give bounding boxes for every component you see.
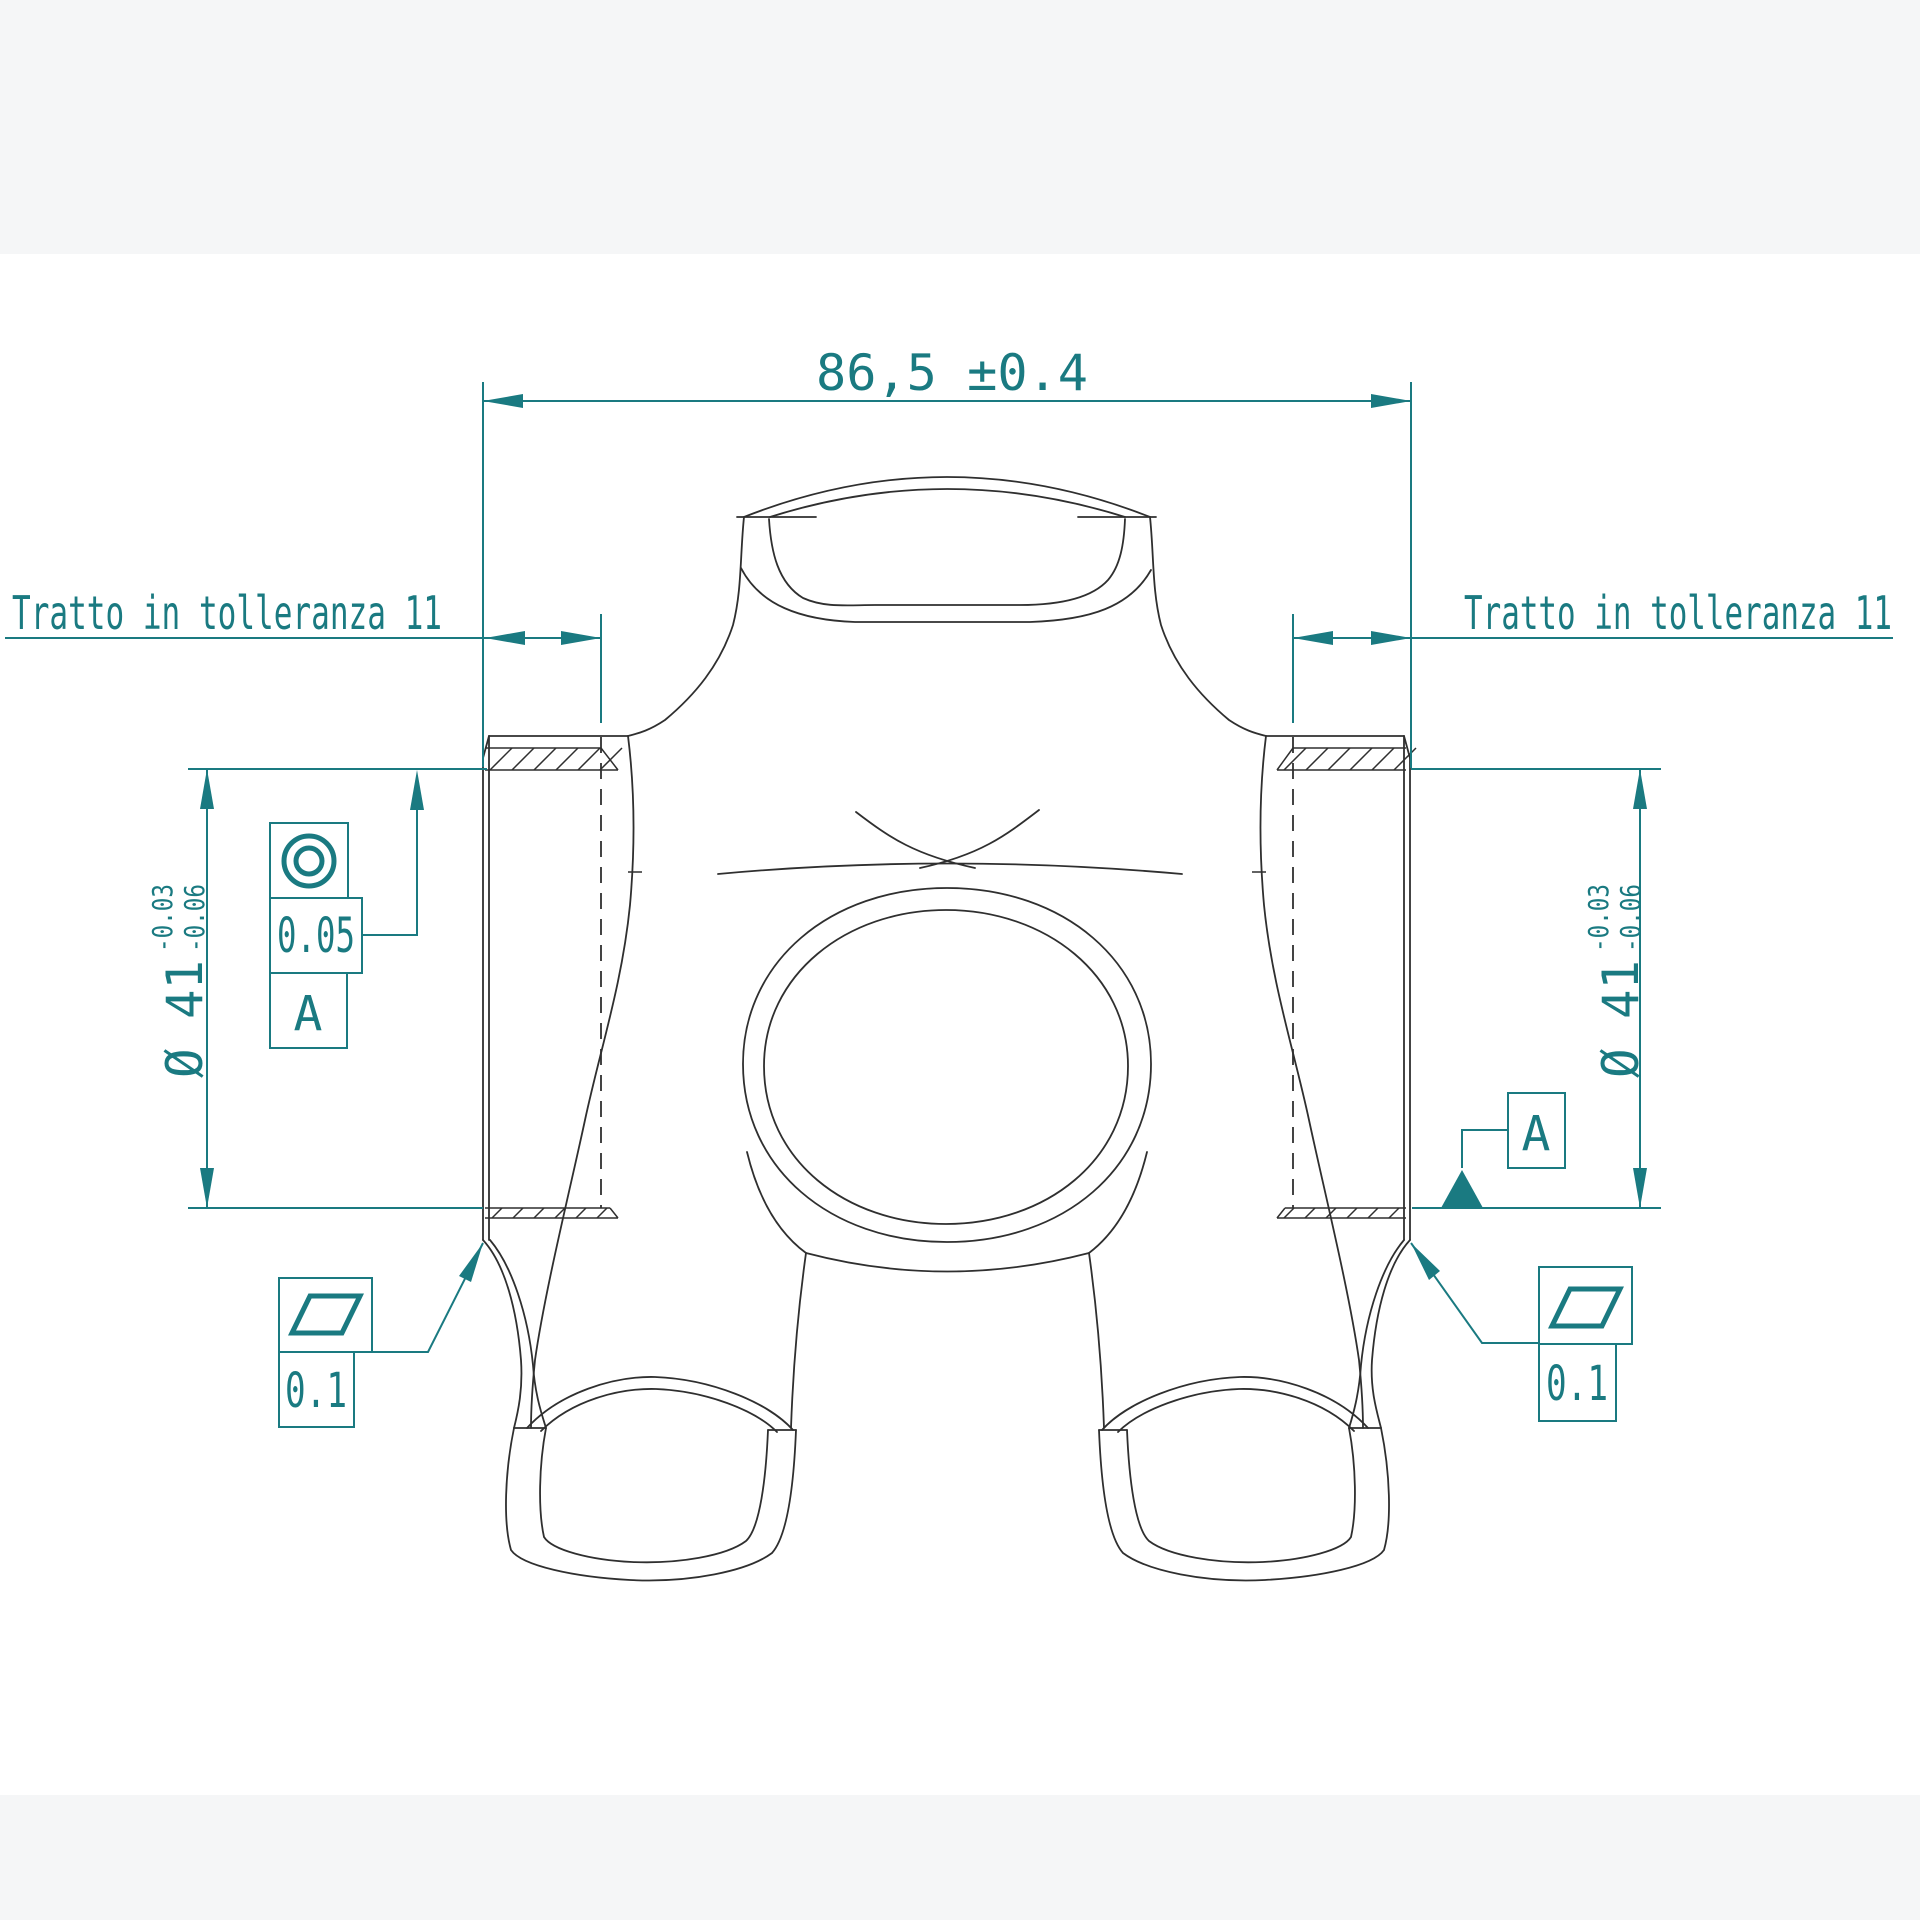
page-top-band (0, 0, 1920, 254)
arrow-up-icon (1633, 769, 1647, 809)
waist-front-edge (718, 864, 1182, 875)
hatch-line (1284, 1208, 1294, 1218)
hatch-line (556, 748, 578, 770)
right-journal-body-fillet (1261, 736, 1364, 1428)
hatch-line (534, 1208, 544, 1218)
ear-slot-lower-band (741, 568, 1151, 622)
bottom-web-sag (806, 1253, 1089, 1272)
right-diameter-tol-lower: -0.06 (1614, 884, 1647, 952)
arrow-down-icon (200, 1168, 214, 1208)
arrow-right-icon (1371, 631, 1411, 645)
top-width-value: 86,5 ±0.4 (816, 344, 1088, 402)
left-foot-cup-outer (506, 1428, 796, 1580)
right-journal-top-band (1277, 748, 1406, 770)
arrow-left-icon (483, 394, 523, 408)
part-outline (483, 477, 1416, 1580)
right-foot-cup-inner (1127, 1428, 1355, 1562)
hatch-line (513, 1208, 523, 1218)
hatch-line (1347, 1208, 1357, 1218)
ear-inner-arch (770, 489, 1125, 517)
flatness-left-tolerance: 0.1 (285, 1363, 347, 1419)
right-diameter-tol-upper: -0.03 (1582, 884, 1615, 952)
center-bore-inner (764, 910, 1128, 1224)
hatch-line (1328, 748, 1350, 770)
arrow-left-icon (485, 631, 525, 645)
left-leg-inner-edge (791, 1253, 806, 1428)
right-leg-outer-edge (1372, 1240, 1410, 1428)
waist-cross-left (856, 812, 975, 868)
datum-triangle-icon (1441, 1170, 1483, 1208)
left-diameter-value: Ø 41 (156, 960, 214, 1078)
bottom-web-right-transition (1089, 1152, 1147, 1253)
fcf-flatness-left: 0.1 (279, 1243, 483, 1427)
annotations: 86,5 ±0.4 Tratto in tolleranza 11 Tratto… (5, 344, 1893, 1427)
right-tolerance-section-label: Tratto in tolleranza 11 (1464, 586, 1892, 640)
arrow-up-right-icon (459, 1243, 483, 1282)
right-journal-bottom-band (1277, 1208, 1406, 1218)
right-journal-end-face (1404, 736, 1410, 1240)
fcf-concentricity: 0.05 A (270, 770, 424, 1048)
hatch-line (578, 748, 600, 770)
hatch-line (1368, 1208, 1378, 1218)
dimension-tolerance-section-left: Tratto in tolleranza 11 (5, 586, 601, 723)
datum-label: A (1522, 1106, 1551, 1162)
arrow-up-icon (200, 769, 214, 809)
concentricity-leader (362, 807, 417, 935)
technical-drawing-canvas: 86,5 ±0.4 Tratto in tolleranza 11 Tratto… (0, 0, 1920, 1920)
hatch-line (576, 1208, 586, 1218)
arrow-up-icon (410, 770, 424, 810)
ear-outer-arch (744, 477, 1150, 517)
right-leg-inner-edge (1089, 1253, 1104, 1428)
concentricity-tolerance: 0.05 (277, 908, 355, 964)
flatness-left-symbol-box (279, 1278, 372, 1352)
hatch-line (1350, 748, 1372, 770)
hatch-line (1394, 748, 1416, 770)
right-diameter-value: Ø 41 (1592, 960, 1650, 1078)
dimension-tolerance-section-right: Tratto in tolleranza 11 (1293, 586, 1893, 723)
left-foot-rim-ticks (514, 1428, 796, 1430)
hatch-line (490, 748, 512, 770)
ear-slot-opening (769, 519, 1125, 605)
page-bottom-band (0, 1795, 1920, 1920)
left-diameter-tol-upper: -0.03 (146, 884, 179, 952)
hatch-line (1305, 1208, 1315, 1218)
hatch-line (1389, 1208, 1399, 1218)
left-journal-body-fillet (531, 736, 634, 1428)
hatch-line (1306, 748, 1328, 770)
arrow-right-icon (561, 631, 601, 645)
flatness-right-symbol-box (1539, 1267, 1632, 1344)
arrow-right-icon (1371, 394, 1411, 408)
hatch-line (1372, 748, 1394, 770)
dimension-top-width: 86,5 ±0.4 (483, 344, 1411, 768)
datum-leader (1462, 1130, 1508, 1168)
fcf-flatness-right: 0.1 (1411, 1243, 1632, 1421)
flatness-right-tolerance: 0.1 (1546, 1356, 1608, 1412)
hatch-line (1284, 748, 1306, 770)
concentricity-datum-ref: A (294, 986, 323, 1042)
neck-right-outer (1150, 517, 1266, 736)
left-tolerance-section-label: Tratto in tolleranza 11 (12, 586, 442, 640)
arrow-down-icon (1633, 1168, 1647, 1208)
right-foot-rim-outer (1102, 1377, 1368, 1430)
left-foot-cup-inner (540, 1428, 768, 1562)
left-journal-end-face (483, 736, 489, 1240)
hatch-line (597, 1208, 607, 1218)
flatness-right-leader (1411, 1243, 1539, 1343)
hatch-line (492, 1208, 502, 1218)
left-foot-rim-outer (527, 1377, 793, 1430)
right-foot-rim-ticks (1099, 1428, 1381, 1430)
hatch-line (534, 748, 556, 770)
top-dim-extension-lines (483, 382, 1411, 768)
arrow-up-left-icon (1411, 1243, 1440, 1280)
left-diameter-tol-lower: -0.06 (178, 884, 211, 952)
neck-left-outer (628, 517, 744, 736)
arrow-left-icon (1293, 631, 1333, 645)
datum-flag: A (1441, 1093, 1565, 1208)
technical-drawing-page: 86,5 ±0.4 Tratto in tolleranza 11 Tratto… (0, 0, 1920, 1920)
hatch-line (512, 748, 534, 770)
left-leg-outer-edge (483, 1240, 521, 1428)
right-leg-outer-inner-edge (1349, 1240, 1404, 1428)
flatness-left-leader (372, 1243, 483, 1352)
left-journal-top-band (485, 748, 618, 770)
right-foot-cup-outer (1099, 1428, 1389, 1580)
center-bore-outer (743, 888, 1151, 1242)
waist-cross-right (920, 810, 1039, 868)
